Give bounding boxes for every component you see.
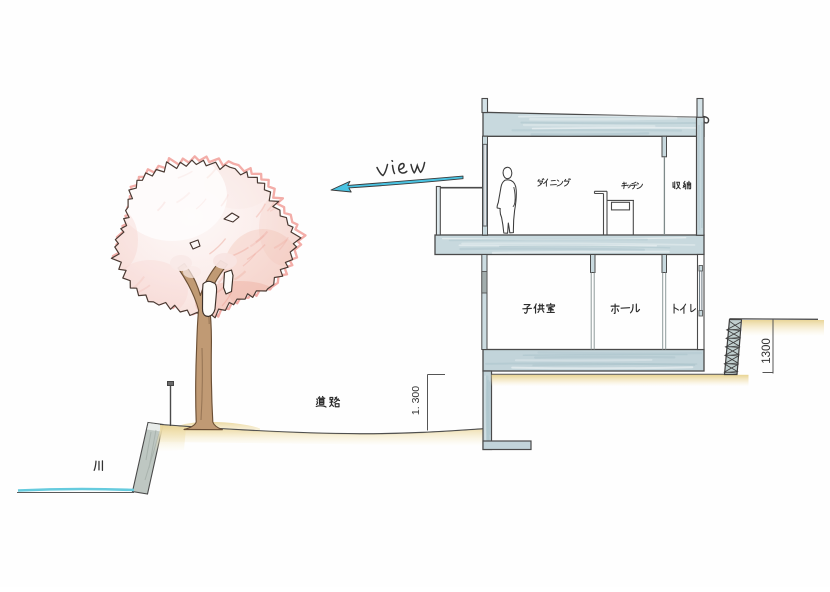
svg-text:1. 300: 1. 300	[410, 386, 422, 415]
svg-text:1300: 1300	[761, 338, 773, 364]
